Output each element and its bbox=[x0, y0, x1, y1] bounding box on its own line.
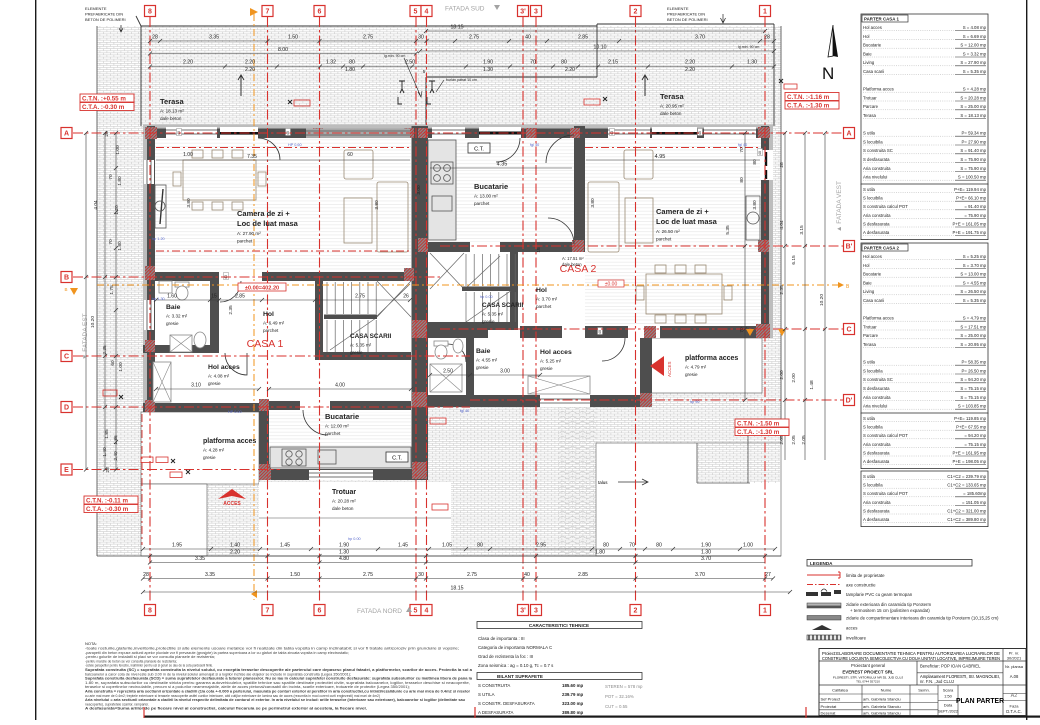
svg-text:C.T.N. :-0.11 m: C.T.N. :-0.11 m bbox=[86, 497, 128, 504]
svg-text:P+E = 191.75 mp: P+E = 191.75 mp bbox=[953, 230, 987, 235]
svg-text:limita de proprietate: limita de proprietate bbox=[846, 573, 885, 578]
svg-text:ACCES: ACCES bbox=[223, 501, 241, 507]
svg-text:▼ FATADA EST: ▼ FATADA EST bbox=[82, 313, 89, 360]
svg-text:3.00: 3.00 bbox=[416, 185, 422, 195]
svg-text:7: 7 bbox=[266, 9, 270, 16]
svg-text:70: 70 bbox=[108, 174, 114, 180]
svg-text:1.45: 1.45 bbox=[398, 543, 408, 549]
svg-text:= 185.60mp: = 185.60mp bbox=[963, 491, 986, 496]
svg-text:nr. F.N. ,Jud CLUJ: nr. F.N. ,Jud CLUJ bbox=[920, 679, 954, 684]
svg-text:S = 3.70 mp: S = 3.70 mp bbox=[963, 263, 987, 268]
svg-text:28: 28 bbox=[764, 35, 770, 41]
svg-text:2.20: 2.20 bbox=[685, 67, 695, 73]
svg-text:80: 80 bbox=[656, 543, 662, 549]
svg-text:ELEMENTE: ELEMENTE bbox=[85, 6, 107, 11]
svg-text:1.30: 1.30 bbox=[701, 550, 711, 556]
svg-text:B: B bbox=[64, 287, 67, 292]
svg-text:S locuibila: S locuibila bbox=[863, 483, 883, 488]
svg-text:C: C bbox=[846, 327, 851, 334]
svg-text:S locuibila: S locuibila bbox=[863, 425, 883, 430]
svg-text:Hol: Hol bbox=[536, 287, 547, 294]
svg-text:Clasa de importanta : III: Clasa de importanta : III bbox=[478, 636, 525, 641]
svg-text:C: C bbox=[64, 354, 69, 361]
svg-text:S construita calcul POT: S construita calcul POT bbox=[863, 491, 908, 496]
svg-text:Calitatea: Calitatea bbox=[832, 688, 849, 693]
svg-text:+ termositem 15 cm (polistiren: + termositem 15 cm (polistiren expandat) bbox=[850, 608, 930, 613]
svg-text:S = 3.32 mp: S = 3.32 mp bbox=[963, 51, 987, 56]
svg-text:2.75: 2.75 bbox=[363, 35, 373, 41]
svg-text:Trotuar: Trotuar bbox=[863, 95, 877, 100]
svg-text:4.04: 4.04 bbox=[93, 200, 99, 210]
svg-text:A desfasurata: A desfasurata bbox=[863, 517, 890, 522]
svg-text:C.T.N. :+0.55 m: C.T.N. :+0.55 m bbox=[82, 95, 126, 102]
svg-text:hp 1.20: hp 1.20 bbox=[152, 237, 165, 241]
svg-text:C1+C2 = 133.65 mp: C1+C2 = 133.65 mp bbox=[947, 483, 986, 488]
svg-text:40: 40 bbox=[524, 572, 530, 578]
svg-text:E: E bbox=[64, 467, 69, 474]
svg-text:1.05: 1.05 bbox=[442, 543, 452, 549]
svg-text:= 75.15 mp: = 75.15 mp bbox=[964, 442, 986, 447]
svg-text:8: 8 bbox=[148, 608, 152, 615]
svg-text:Hol: Hol bbox=[863, 263, 869, 268]
svg-text:A: 20.95 m²: A: 20.95 m² bbox=[660, 104, 684, 109]
svg-text:Hol: Hol bbox=[863, 34, 869, 39]
svg-text:gresie: gresie bbox=[476, 365, 489, 370]
svg-text:1.48: 1.48 bbox=[809, 380, 815, 390]
svg-text:A: 18.13 m²: A: 18.13 m² bbox=[160, 109, 184, 114]
svg-text:A.08: A.08 bbox=[1010, 674, 1019, 679]
svg-text:PARTER CASA 2: PARTER CASA 2 bbox=[864, 245, 899, 250]
svg-text:A: 17.51 m²: A: 17.51 m² bbox=[562, 256, 584, 261]
svg-text:3.80: 3.80 bbox=[590, 198, 596, 208]
svg-text:A2: A2 bbox=[1011, 693, 1018, 699]
svg-text:30: 30 bbox=[418, 35, 424, 41]
svg-text:30: 30 bbox=[418, 572, 424, 578]
svg-text:fgl 40: fgl 40 bbox=[738, 143, 747, 147]
svg-text:Bucatarie: Bucatarie bbox=[474, 182, 508, 191]
svg-text:Zona seismica : ag = 0.10 g, T: Zona seismica : ag = 0.10 g, Tc = 0.7 s bbox=[478, 663, 554, 668]
svg-text:Beneficiar: POP IOAN GABRIEL: Beneficiar: POP IOAN GABRIEL bbox=[920, 664, 981, 669]
svg-text:A: 12.00 m²: A: 12.00 m² bbox=[325, 424, 349, 429]
svg-text:= 91.40 mp: = 91.40 mp bbox=[964, 204, 986, 209]
svg-text:Nume: Nume bbox=[881, 688, 892, 693]
svg-text:1.45: 1.45 bbox=[280, 543, 290, 549]
svg-text:1.75: 1.75 bbox=[109, 285, 115, 295]
svg-text:S = 5.35 mp: S = 5.35 mp bbox=[963, 69, 987, 74]
svg-text:40: 40 bbox=[598, 330, 602, 334]
svg-text:Baie: Baie bbox=[166, 304, 181, 311]
svg-text:CARACTERISTICI TEHNICE: CARACTERISTICI TEHNICE bbox=[529, 623, 589, 628]
svg-text:7: 7 bbox=[266, 608, 270, 615]
svg-text:Semn.: Semn. bbox=[918, 688, 930, 693]
svg-text:1.80: 1.80 bbox=[117, 176, 123, 186]
svg-text:Hol acces: Hol acces bbox=[863, 25, 882, 30]
svg-text:2.20: 2.20 bbox=[685, 60, 695, 66]
svg-text:S = 4.08 mp: S = 4.08 mp bbox=[963, 25, 987, 30]
svg-text:3.80: 3.80 bbox=[186, 198, 192, 208]
svg-text:1.32: 1.32 bbox=[326, 60, 336, 66]
svg-text:Aria construita: Aria construita bbox=[863, 500, 891, 505]
svg-text:6: 6 bbox=[318, 9, 322, 16]
svg-text:2.20: 2.20 bbox=[245, 67, 255, 73]
svg-text:1.20: 1.20 bbox=[114, 205, 120, 215]
svg-text:arh. Gabriela Stanciu: arh. Gabriela Stanciu bbox=[863, 704, 901, 709]
svg-text:Hol acces: Hol acces bbox=[863, 254, 882, 259]
svg-text:Living: Living bbox=[863, 60, 875, 65]
svg-text:2.15: 2.15 bbox=[608, 60, 618, 66]
svg-text:1.40: 1.40 bbox=[102, 447, 108, 457]
svg-text:A desfasurata=Suma ariilor de: A desfasurata=Suma ariilor de pe fiecare… bbox=[85, 707, 367, 711]
svg-text:= 75.90 mp: = 75.90 mp bbox=[964, 213, 986, 218]
svg-text:S UTILA: S UTILA bbox=[478, 692, 495, 697]
svg-text:Data: Data bbox=[944, 703, 953, 708]
svg-text:3.15: 3.15 bbox=[799, 225, 805, 235]
svg-text:P+E = 161.95 mp: P+E = 161.95 mp bbox=[953, 450, 987, 455]
svg-text:Desenat: Desenat bbox=[821, 711, 837, 716]
svg-text:±0.00=402.20: ±0.00=402.20 bbox=[245, 285, 279, 291]
svg-text:Camera de zi +: Camera de zi + bbox=[237, 209, 290, 218]
svg-text:B: B bbox=[64, 275, 69, 282]
svg-text:platforma acces: platforma acces bbox=[203, 438, 256, 445]
svg-text:2.85: 2.85 bbox=[578, 35, 588, 41]
svg-text:SEPT./2022: SEPT./2022 bbox=[938, 710, 958, 714]
svg-text:acces: acces bbox=[846, 626, 858, 631]
svg-text:1.80: 1.80 bbox=[595, 550, 605, 556]
svg-text:26: 26 bbox=[403, 294, 409, 300]
svg-text:80: 80 bbox=[603, 543, 609, 549]
svg-text:28: 28 bbox=[152, 35, 158, 41]
svg-text:S locuibila: S locuibila bbox=[863, 139, 883, 144]
svg-text:P+E= 119.94 mp: P+E= 119.94 mp bbox=[954, 187, 987, 192]
svg-text:S = 75.15 mp: S = 75.15 mp bbox=[960, 386, 986, 391]
svg-text:D.T.A.C.: D.T.A.C. bbox=[1006, 709, 1022, 714]
svg-text:CASA SCARII: CASA SCARII bbox=[350, 333, 392, 340]
svg-text:1.90: 1.90 bbox=[339, 543, 349, 549]
svg-text:Hol acces: Hol acces bbox=[540, 349, 572, 356]
svg-text:S = 4.28 mp: S = 4.28 mp bbox=[963, 87, 987, 92]
svg-text:S = 6.69 mp: S = 6.69 mp bbox=[963, 34, 987, 39]
svg-text:Baie: Baie bbox=[863, 280, 872, 285]
svg-text:ACCES: ACCES bbox=[667, 361, 672, 377]
svg-text:3.80: 3.80 bbox=[752, 200, 758, 210]
svg-text:27: 27 bbox=[765, 572, 771, 578]
svg-text:Aria nivelului: Aria nivelului bbox=[863, 404, 887, 409]
svg-text:Proiectant general: Proiectant general bbox=[851, 663, 885, 668]
svg-text:2.75: 2.75 bbox=[355, 294, 365, 300]
svg-text:3.00: 3.00 bbox=[500, 369, 510, 375]
svg-text:A: 27.90 m²: A: 27.90 m² bbox=[237, 231, 261, 236]
svg-text:S = 26.50 mp: S = 26.50 mp bbox=[960, 289, 986, 294]
svg-text:28: 28 bbox=[779, 162, 785, 168]
svg-text:parchet: parchet bbox=[536, 304, 552, 309]
svg-text:S = 25.00 mp: S = 25.00 mp bbox=[960, 104, 986, 109]
svg-text:A: 3.70 m²: A: 3.70 m² bbox=[536, 297, 558, 302]
svg-text:Camera de zi +: Camera de zi + bbox=[656, 207, 709, 216]
svg-text:S = 91.40 mp: S = 91.40 mp bbox=[960, 148, 986, 153]
svg-text:lg.min. 90 cm: lg.min. 90 cm bbox=[738, 45, 759, 49]
svg-text:C.T.A. :-1.30 m: C.T.A. :-1.30 m bbox=[787, 102, 830, 109]
svg-text:1.30: 1.30 bbox=[747, 60, 757, 66]
svg-text:HP 0.00: HP 0.00 bbox=[228, 410, 242, 414]
svg-text:platforma acces: platforma acces bbox=[685, 355, 738, 362]
svg-text:S construita SC: S construita SC bbox=[863, 377, 893, 382]
svg-text:= 94.20 mp: = 94.20 mp bbox=[964, 433, 986, 438]
svg-text:18.15: 18.15 bbox=[451, 586, 464, 592]
svg-text:PLAN PARTER: PLAN PARTER bbox=[956, 698, 1004, 705]
svg-text:C1+C2 = 389.80 mp: C1+C2 = 389.80 mp bbox=[947, 517, 986, 522]
svg-text:389.80 mp: 389.80 mp bbox=[562, 710, 584, 715]
svg-text:STEREN = 578 mp: STEREN = 578 mp bbox=[605, 684, 643, 689]
svg-text:10.10: 10.10 bbox=[594, 45, 607, 51]
svg-text:A: 5.35 m²: A: 5.35 m² bbox=[350, 343, 372, 348]
svg-text:zidarie exterioara din caramid: zidarie exterioara din caramida tip Poro… bbox=[846, 602, 932, 607]
svg-text:S desfasurata: S desfasurata bbox=[863, 157, 890, 162]
svg-text:S utila: S utila bbox=[863, 187, 876, 192]
svg-text:70: 70 bbox=[739, 327, 745, 333]
svg-text:Casa scarii: Casa scarii bbox=[863, 69, 884, 74]
svg-text:3.10: 3.10 bbox=[191, 383, 201, 389]
svg-text:1.00: 1.00 bbox=[183, 152, 193, 158]
svg-text:2.95: 2.95 bbox=[536, 543, 546, 549]
svg-text:Categoria de importanta NORMAL: Categoria de importanta NORMALA C bbox=[478, 645, 552, 650]
svg-text:1.00: 1.00 bbox=[743, 543, 753, 549]
svg-text:C.T.A. :-1.30 m: C.T.A. :-1.30 m bbox=[737, 429, 780, 436]
svg-text:40: 40 bbox=[758, 151, 762, 155]
svg-text:fgl 40: fgl 40 bbox=[460, 409, 469, 413]
svg-text:Loc de luat masa: Loc de luat masa bbox=[656, 217, 718, 226]
svg-text:gresie: gresie bbox=[482, 319, 495, 324]
svg-text:hp 1.30: hp 1.30 bbox=[152, 297, 165, 301]
svg-text:1.90: 1.90 bbox=[701, 543, 711, 549]
svg-text:A: 13.00 m²: A: 13.00 m² bbox=[474, 194, 498, 199]
svg-text:A: 20.28 m²: A: 20.28 m² bbox=[332, 499, 356, 504]
svg-text:3.80: 3.80 bbox=[374, 200, 380, 210]
svg-text:S utila: S utila bbox=[863, 474, 876, 479]
svg-text:S construita calcul POT: S construita calcul POT bbox=[863, 433, 908, 438]
svg-text:Baie: Baie bbox=[863, 51, 872, 56]
svg-text:S = 4.55 mp: S = 4.55 mp bbox=[963, 280, 987, 285]
svg-text:2.05: 2.05 bbox=[791, 435, 797, 445]
svg-text:1.80: 1.80 bbox=[117, 241, 123, 251]
svg-text:2.50: 2.50 bbox=[405, 60, 415, 66]
svg-text:S construita SC: S construita SC bbox=[863, 148, 893, 153]
svg-text:S desfasurata: S desfasurata bbox=[863, 221, 890, 226]
svg-text:1: 1 bbox=[763, 608, 767, 615]
svg-text:TEL 0744 557210: TEL 0744 557210 bbox=[856, 680, 880, 684]
svg-text:POT = 32.16%: POT = 32.16% bbox=[605, 694, 634, 699]
svg-text:3: 3 bbox=[534, 608, 538, 615]
svg-text:28: 28 bbox=[105, 467, 111, 473]
svg-text:gresie: gresie bbox=[208, 381, 221, 386]
svg-text:parchet: parchet bbox=[237, 239, 253, 244]
svg-text:Aria construita: Aria construita bbox=[863, 395, 891, 400]
svg-text:A: 26.50 m²: A: 26.50 m² bbox=[656, 229, 680, 234]
svg-text:S = 4.79 mp: S = 4.79 mp bbox=[963, 316, 987, 321]
svg-text:2.00: 2.00 bbox=[779, 370, 785, 380]
svg-text:P+E= 119.85 mp: P+E= 119.85 mp bbox=[954, 416, 987, 421]
svg-text:Terasa: Terasa bbox=[660, 92, 684, 101]
svg-text:EVEREST PROIECT SRL: EVEREST PROIECT SRL bbox=[842, 670, 894, 675]
svg-text:gresie: gresie bbox=[203, 455, 216, 460]
svg-text:P+E= 66.10 mp: P+E= 66.10 mp bbox=[956, 196, 986, 201]
svg-text:Hol acces: Hol acces bbox=[208, 364, 240, 371]
svg-text:40: 40 bbox=[286, 131, 290, 135]
svg-text:4.35: 4.35 bbox=[497, 162, 508, 168]
svg-text:80: 80 bbox=[561, 60, 567, 66]
svg-text:hp 90: hp 90 bbox=[690, 400, 700, 404]
svg-text:A: 4.08 m²: A: 4.08 m² bbox=[208, 374, 230, 379]
svg-text:239.79 mp: 239.79 mp bbox=[562, 692, 584, 697]
svg-text:Faza: Faza bbox=[1010, 704, 1020, 709]
svg-text:S = 100.50 mp: S = 100.50 mp bbox=[958, 175, 987, 180]
svg-text:1.50: 1.50 bbox=[288, 35, 298, 41]
svg-text:S = 94.20 mp: S = 94.20 mp bbox=[960, 377, 986, 382]
svg-text:gresie: gresie bbox=[350, 350, 363, 355]
svg-text:gresie: gresie bbox=[540, 366, 553, 371]
svg-text:P= 58.35 mp: P= 58.35 mp bbox=[962, 360, 987, 365]
svg-text:HP 0.60: HP 0.60 bbox=[288, 143, 302, 147]
svg-text:dale beton: dale beton bbox=[660, 111, 682, 116]
svg-text:28: 28 bbox=[143, 572, 149, 578]
svg-text:A: 5.35 m²: A: 5.35 m² bbox=[482, 312, 504, 317]
svg-text:3.35: 3.35 bbox=[209, 35, 219, 41]
svg-text:A: 4.55 m²: A: 4.55 m² bbox=[476, 358, 498, 363]
svg-text:parchet: parchet bbox=[474, 201, 490, 206]
svg-text:S = 27.90 mp: S = 27.90 mp bbox=[960, 60, 986, 65]
svg-text:A: A bbox=[846, 131, 851, 138]
svg-text:S = 13.00 mp: S = 13.00 mp bbox=[960, 272, 986, 277]
svg-text:Loc de luat masa: Loc de luat masa bbox=[237, 219, 299, 228]
svg-text:1.60: 1.60 bbox=[167, 294, 177, 300]
svg-text:zidarie de compartimentare int: zidarie de compartimentare interioara di… bbox=[846, 616, 999, 621]
svg-text:S utila: S utila bbox=[863, 416, 876, 421]
svg-text:S = 12.00 mp: S = 12.00 mp bbox=[960, 43, 986, 48]
svg-text:2.75: 2.75 bbox=[363, 572, 373, 578]
svg-text:P+E = 161.05 mp: P+E = 161.05 mp bbox=[953, 221, 987, 226]
svg-text:185.60 mp: 185.60 mp bbox=[562, 683, 584, 688]
svg-text:S = 20.28 mp: S = 20.28 mp bbox=[960, 95, 986, 100]
svg-text:BETON DE POLIMERI: BETON DE POLIMERI bbox=[667, 17, 708, 22]
svg-text:S utila: S utila bbox=[863, 360, 876, 365]
svg-text:FATADA SUD: FATADA SUD bbox=[445, 6, 485, 13]
svg-text:P+E = 198.05 mp: P+E = 198.05 mp bbox=[953, 459, 987, 464]
svg-text:FATADA NORD: FATADA NORD bbox=[357, 608, 402, 615]
svg-text:2.40: 2.40 bbox=[113, 451, 119, 461]
svg-text:10.20: 10.20 bbox=[90, 316, 96, 328]
svg-text:axe constructie: axe constructie bbox=[846, 583, 876, 588]
svg-text:S locuibila: S locuibila bbox=[863, 196, 883, 201]
svg-text:NOTA:: NOTA: bbox=[85, 641, 97, 646]
svg-text:CASA SCARII: CASA SCARII bbox=[482, 302, 524, 309]
svg-text:Bucatarie: Bucatarie bbox=[325, 412, 359, 421]
svg-text:1.80: 1.80 bbox=[345, 67, 355, 73]
svg-text:18.15: 18.15 bbox=[451, 25, 464, 31]
svg-text:Scara: Scara bbox=[943, 688, 954, 693]
svg-text:28: 28 bbox=[104, 131, 110, 137]
svg-text:6: 6 bbox=[318, 608, 322, 615]
svg-text:Proiectat: Proiectat bbox=[821, 704, 838, 709]
svg-text:5: 5 bbox=[414, 9, 418, 16]
svg-text:PREFABRICATE DIN: PREFABRICATE DIN bbox=[667, 12, 705, 17]
svg-text:Trotuar: Trotuar bbox=[863, 324, 877, 329]
svg-text:A: 6.49 m²: A: 6.49 m² bbox=[263, 321, 285, 326]
svg-text:CONSTRUIRE LOCUINTA SEMICOLECT: CONSTRUIRE LOCUINTA SEMICOLECTIVA CU DOU… bbox=[822, 656, 1000, 661]
svg-text:invelitoare: invelitoare bbox=[846, 636, 867, 641]
svg-text:4: 4 bbox=[425, 9, 429, 16]
svg-text:S = 103.85 mp: S = 103.85 mp bbox=[958, 404, 987, 409]
svg-text:70: 70 bbox=[530, 60, 536, 66]
svg-text:▲ FATADA VEST: ▲ FATADA VEST bbox=[836, 181, 843, 232]
svg-text:S = 20.95 mp: S = 20.95 mp bbox=[960, 342, 986, 347]
svg-text:1.40: 1.40 bbox=[230, 543, 240, 549]
svg-text:D': D' bbox=[846, 398, 853, 405]
svg-text:Baie: Baie bbox=[476, 348, 491, 355]
svg-text:P= 59.34 mp: P= 59.34 mp bbox=[962, 131, 987, 136]
svg-text:LEGENDA: LEGENDA bbox=[810, 561, 833, 566]
svg-text:2.35: 2.35 bbox=[779, 285, 785, 295]
svg-text:Parcare: Parcare bbox=[863, 104, 879, 109]
svg-text:talus: talus bbox=[598, 480, 608, 485]
svg-text:gresie: gresie bbox=[166, 321, 179, 326]
svg-text:BILANT SUPRAFETE: BILANT SUPRAFETE bbox=[497, 674, 543, 679]
svg-text:Aria construita: Aria construita bbox=[863, 166, 891, 171]
svg-text:60: 60 bbox=[347, 152, 353, 158]
svg-text:A: 3.32 m²: A: 3.32 m² bbox=[166, 314, 188, 319]
svg-text:2.75: 2.75 bbox=[469, 35, 479, 41]
svg-text:A: 4.28 m²: A: 4.28 m² bbox=[203, 448, 225, 453]
svg-text:70: 70 bbox=[108, 239, 114, 245]
svg-text:10.20: 10.20 bbox=[819, 294, 825, 306]
svg-text:hp 0.00: hp 0.00 bbox=[348, 537, 361, 541]
svg-text:1.95: 1.95 bbox=[172, 543, 182, 549]
svg-text:6.15: 6.15 bbox=[791, 255, 797, 265]
svg-text:Casa scarii: Casa scarii bbox=[863, 298, 884, 303]
svg-text:S = 17.51 mp: S = 17.51 mp bbox=[960, 324, 986, 329]
svg-text:3': 3' bbox=[520, 608, 526, 615]
svg-text:Trotuar: Trotuar bbox=[332, 489, 356, 496]
svg-text:1.00: 1.00 bbox=[118, 362, 124, 372]
svg-text:80: 80 bbox=[349, 60, 355, 66]
svg-text:tamplarie PVC cu geam termopan: tamplarie PVC cu geam termopan bbox=[846, 592, 913, 597]
svg-text:S = 75.90 mp: S = 75.90 mp bbox=[960, 157, 986, 162]
svg-text:30/2021: 30/2021 bbox=[1007, 656, 1022, 661]
svg-text:3.35: 3.35 bbox=[205, 572, 215, 578]
svg-text:S utila: S utila bbox=[863, 131, 876, 136]
svg-text:Sef Proiect: Sef Proiect bbox=[821, 697, 841, 702]
svg-text:A: 5.25 m²: A: 5.25 m² bbox=[540, 359, 562, 364]
svg-text:70: 70 bbox=[629, 543, 635, 549]
svg-text:1.90: 1.90 bbox=[483, 60, 493, 66]
svg-text:70: 70 bbox=[739, 147, 745, 153]
svg-text:3.70: 3.70 bbox=[695, 572, 705, 578]
svg-text:parchet: parchet bbox=[263, 328, 279, 333]
svg-text:1.30: 1.30 bbox=[483, 67, 493, 73]
svg-text:Platforma acces: Platforma acces bbox=[863, 87, 894, 92]
svg-text:C.T.: C.T. bbox=[392, 456, 402, 462]
svg-text:A DESFASURATA: A DESFASURATA bbox=[478, 710, 514, 715]
svg-text:2.35: 2.35 bbox=[228, 305, 234, 315]
svg-text:S = 75.15 mp: S = 75.15 mp bbox=[960, 395, 986, 400]
svg-text:4.04: 4.04 bbox=[779, 220, 785, 230]
svg-text:1: 1 bbox=[763, 9, 767, 16]
svg-text:Terasa: Terasa bbox=[160, 97, 184, 106]
svg-text:parchet: parchet bbox=[656, 237, 672, 242]
svg-text:S CONSTR. DESFASURATA: S CONSTR. DESFASURATA bbox=[478, 701, 535, 706]
svg-text:2.00: 2.00 bbox=[791, 373, 797, 383]
svg-text:1.50: 1.50 bbox=[290, 572, 300, 578]
svg-text:4.00: 4.00 bbox=[335, 383, 345, 389]
svg-text:5: 5 bbox=[414, 608, 418, 615]
